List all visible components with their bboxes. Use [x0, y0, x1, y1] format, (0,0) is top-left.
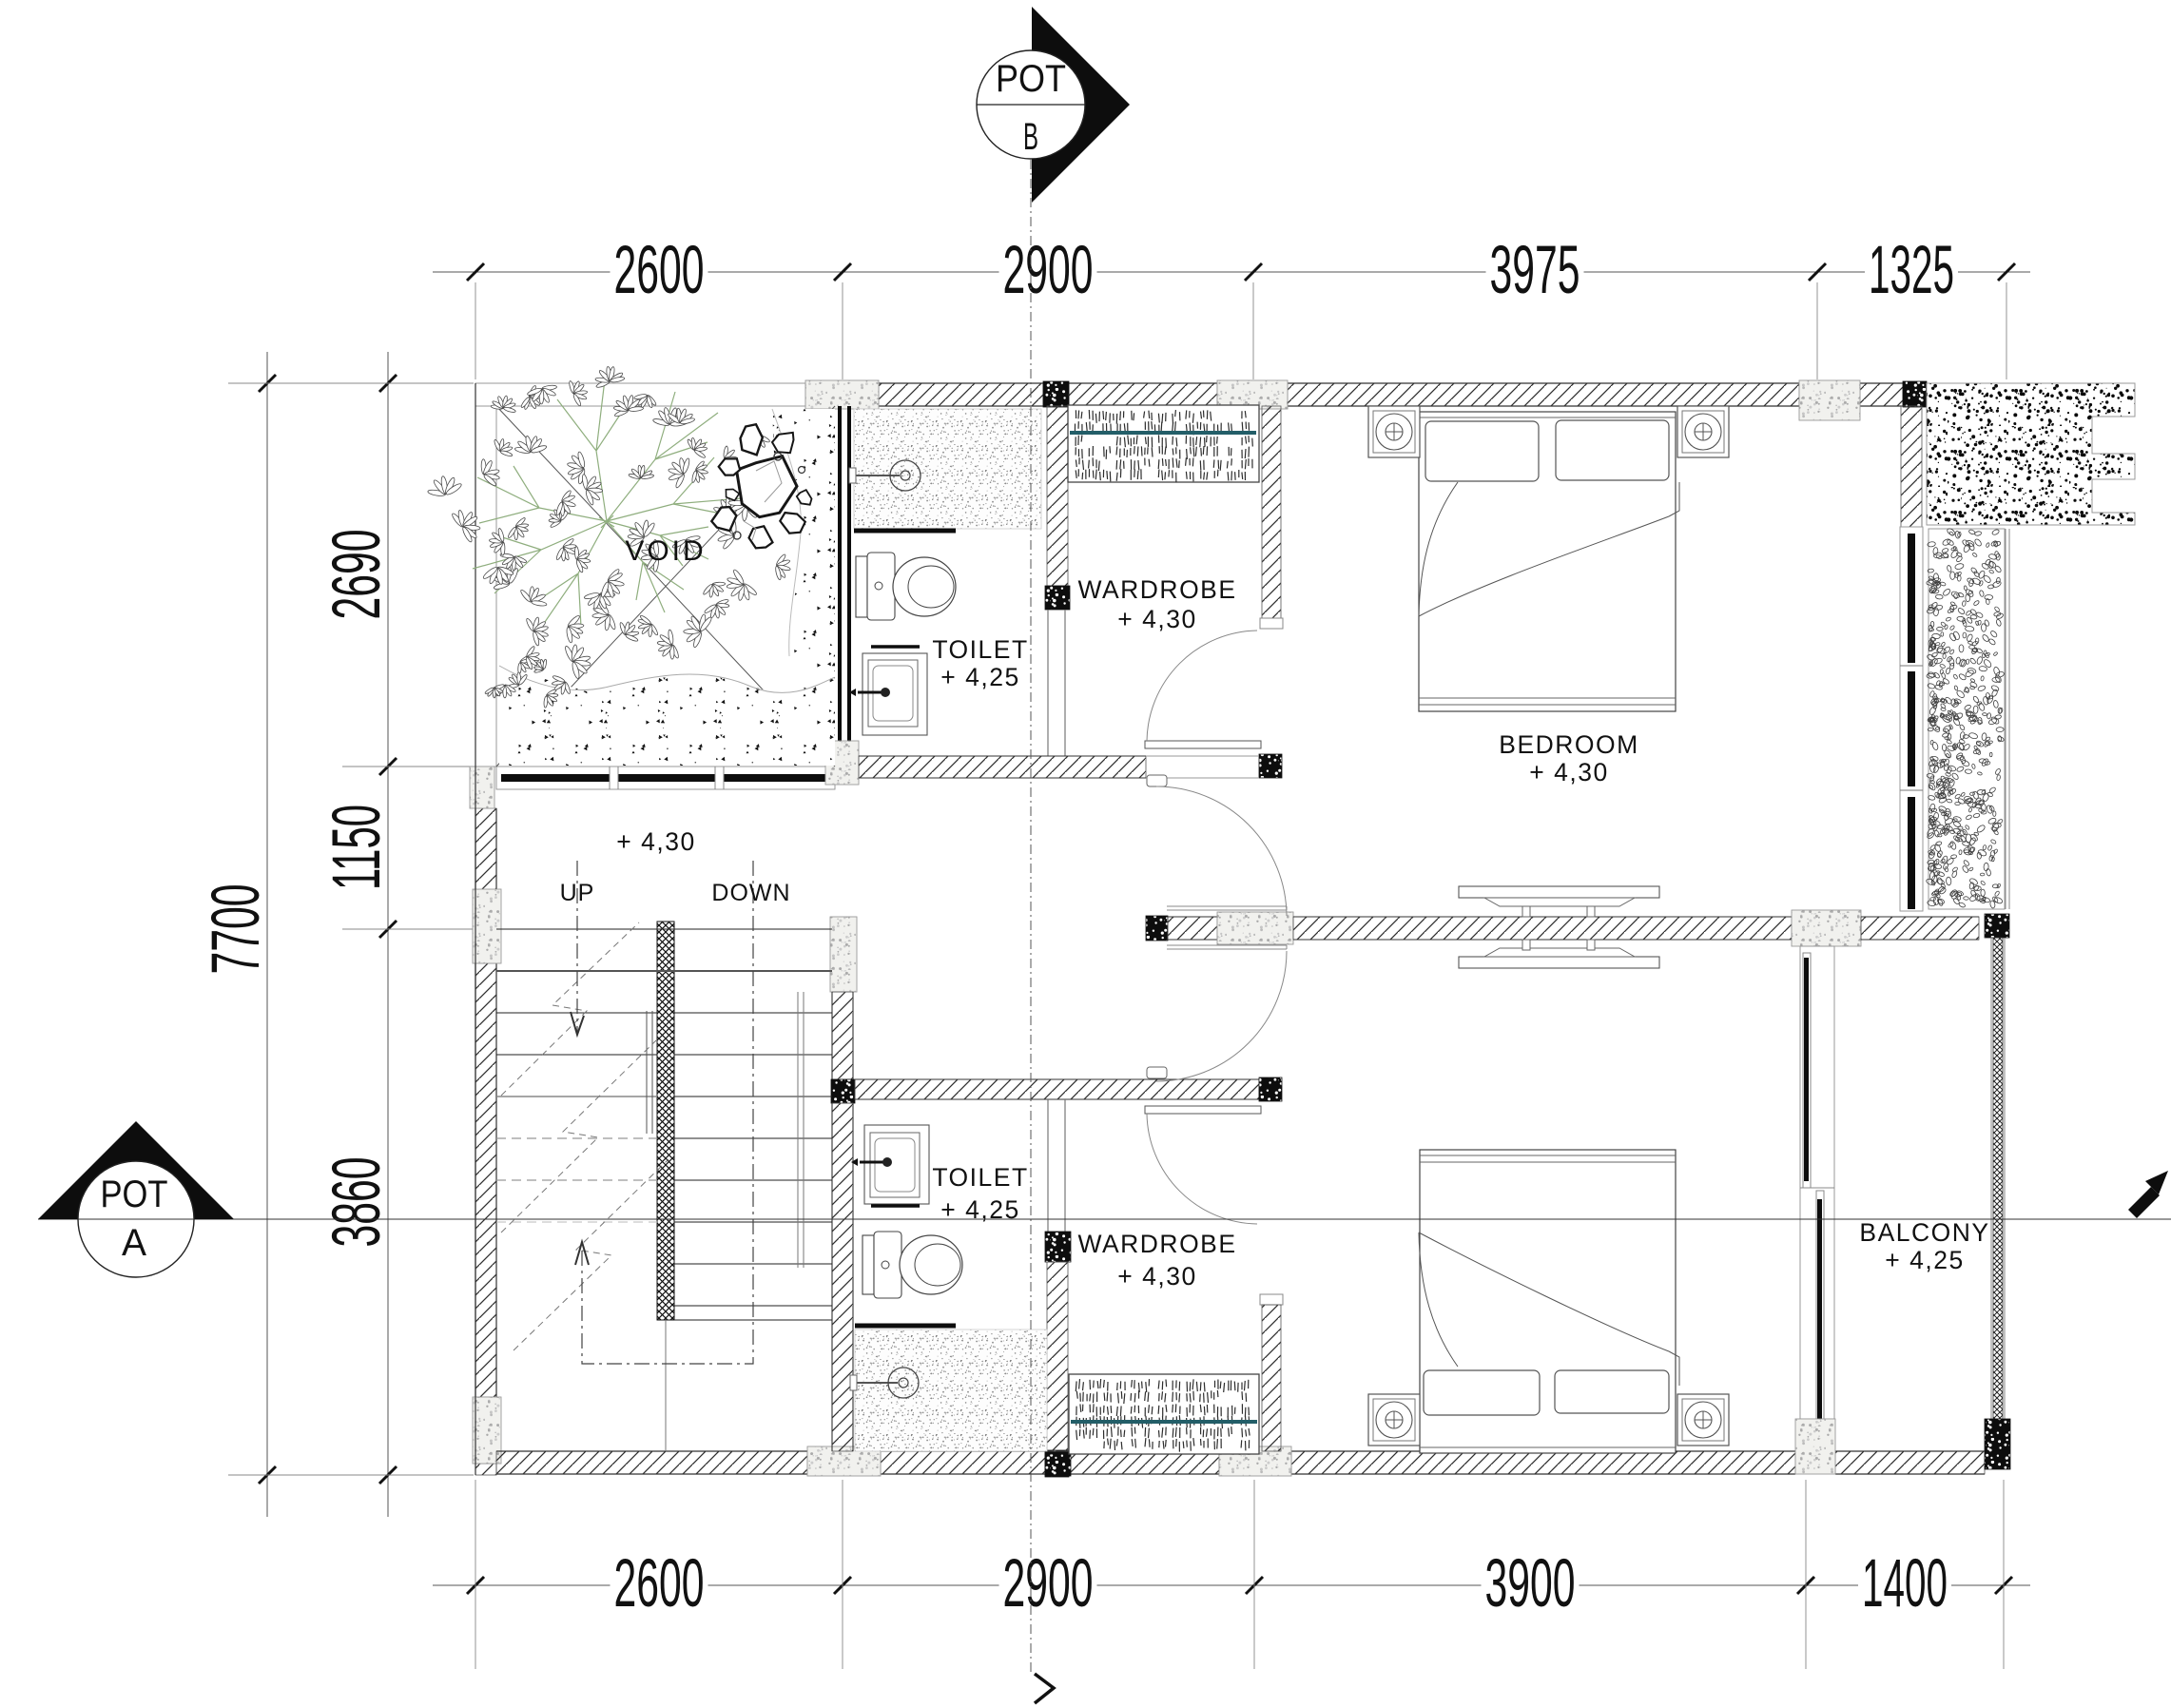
svg-text:DOWN: DOWN — [711, 880, 790, 906]
svg-text:TOILET: TOILET — [932, 1163, 1028, 1192]
svg-text:POT: POT — [101, 1174, 168, 1215]
svg-text:3975: 3975 — [1490, 233, 1580, 308]
svg-text:2600: 2600 — [614, 233, 705, 308]
svg-text:3860: 3860 — [320, 1157, 395, 1248]
svg-text:+ 4,25: + 4,25 — [940, 663, 1019, 691]
svg-text:1325: 1325 — [1869, 233, 1954, 308]
svg-text:WARDROBE: WARDROBE — [1077, 1230, 1236, 1258]
svg-text:2600: 2600 — [614, 1546, 705, 1621]
svg-text:+ 4,30: + 4,30 — [1117, 605, 1196, 633]
svg-text:1400: 1400 — [1862, 1546, 1948, 1621]
svg-text:1150: 1150 — [320, 805, 395, 890]
svg-text:+ 4,30: + 4,30 — [1117, 1262, 1196, 1291]
svg-text:BEDROOM: BEDROOM — [1499, 730, 1638, 759]
svg-text:VOID: VOID — [625, 535, 706, 567]
svg-text:+ 4,30: + 4,30 — [616, 827, 695, 856]
svg-text:2900: 2900 — [1003, 1546, 1094, 1621]
svg-text:BALCONY: BALCONY — [1859, 1218, 1989, 1247]
svg-text:POT: POT — [996, 58, 1066, 100]
svg-text:+ 4,25: + 4,25 — [1885, 1246, 1964, 1274]
svg-text:3900: 3900 — [1485, 1546, 1576, 1621]
svg-text:WARDROBE: WARDROBE — [1077, 575, 1236, 604]
svg-text:7700: 7700 — [199, 884, 274, 975]
svg-text:2900: 2900 — [1003, 233, 1094, 308]
svg-text:+ 4,30: + 4,30 — [1529, 758, 1608, 786]
svg-text:B: B — [1023, 116, 1038, 158]
svg-text:A: A — [122, 1222, 146, 1264]
svg-text:TOILET: TOILET — [932, 635, 1028, 664]
svg-text:2690: 2690 — [320, 530, 395, 620]
svg-text:UP: UP — [560, 880, 595, 906]
